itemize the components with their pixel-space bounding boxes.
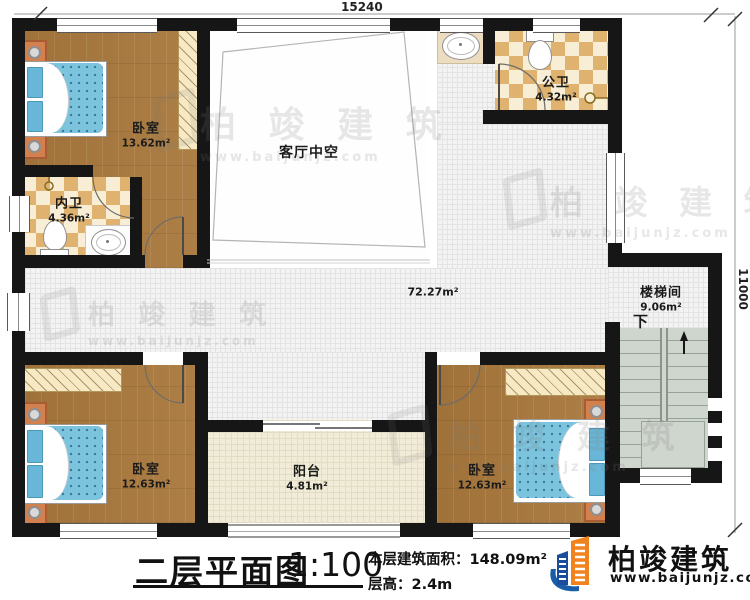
room-area: 12.63m² <box>458 479 507 491</box>
room-name: 客厅中空 <box>279 145 339 161</box>
room-area: 13.62m² <box>122 137 171 149</box>
door-arc <box>145 217 183 255</box>
dimension-tick <box>704 8 718 22</box>
door-arc <box>440 365 480 405</box>
floor-height-value: 2.4m <box>412 577 453 593</box>
title-underline <box>133 585 363 588</box>
room-label-bedroom-sw: 卧室 12.63m² <box>122 464 171 491</box>
room-area: 4.36m² <box>48 212 89 224</box>
watermark-logo-icon <box>502 167 547 231</box>
room-area: 4.32m² <box>535 91 576 103</box>
room-area: 12.63m² <box>122 478 171 490</box>
room-name: 卧室 <box>122 464 171 479</box>
logo-windows <box>575 545 585 580</box>
floor-area-text: 本层建筑面积：148.09m² <box>368 548 547 569</box>
door-arc <box>145 365 183 403</box>
room-name: 卧室 <box>458 465 507 480</box>
watermark-company: 柏 竣 建 筑 <box>448 410 684 458</box>
light-icon <box>45 182 53 190</box>
room-label-bedroom-nw: 卧室 13.62m² <box>122 123 171 150</box>
floor-area-label: 本层建筑面积： <box>368 552 470 568</box>
room-name: 内卫 <box>48 198 89 213</box>
watermark: 柏 竣 建 筑 www.baijunjz.com <box>88 293 273 348</box>
watermark-logo-icon <box>387 403 432 467</box>
company-website: www.baijunjz.com <box>610 570 750 586</box>
room-label-bath-inner: 内卫 4.36m² <box>48 198 89 225</box>
room-area: 4.81m² <box>286 480 327 492</box>
room-label-balcony: 阳台 4.81m² <box>286 466 327 493</box>
company-logo-icon <box>545 533 603 593</box>
room-label-bedroom-se: 卧室 12.63m² <box>458 465 507 492</box>
room-label-stair-hall: 楼梯间 9.06m² <box>640 287 682 314</box>
watermark-company: 柏 竣 建 筑 <box>200 96 452 148</box>
room-name: 楼梯间 <box>640 287 682 302</box>
dimension-top: 15240 <box>341 0 383 14</box>
room-label-corridor: 72.27m² <box>407 287 458 300</box>
watermark-logo-icon <box>40 286 81 343</box>
floor-height-label: 层高： <box>368 577 412 593</box>
logo-tower-orange <box>571 536 589 585</box>
room-label-living-void: 客厅中空 <box>279 145 339 161</box>
floor-plan-canvas: 柏 竣 建 筑 www.baijunjz.com 柏 竣 建 筑 www.bai… <box>0 0 750 600</box>
stair-direction-label: 下 <box>633 313 649 330</box>
room-area: 72.27m² <box>407 287 458 300</box>
watermark-website: www.baijunjz.com <box>550 226 750 241</box>
direction-text: 下 <box>633 313 649 330</box>
watermark-company: 柏 竣 建 筑 <box>88 293 273 332</box>
floor-height-text: 层高：2.4m <box>368 573 452 594</box>
drain-icon <box>585 93 595 103</box>
dimension-right: 11000 <box>736 268 750 310</box>
watermark-company: 柏 竣 建 筑 <box>550 176 750 224</box>
room-name: 卧室 <box>122 123 171 138</box>
watermark-website: www.baijunjz.com <box>88 334 273 348</box>
watermark: 柏 竣 建 筑 www.baijunjz.com <box>550 176 750 241</box>
room-label-bath-public: 公卫 4.32m² <box>535 77 576 104</box>
floor-area-value: 148.09m² <box>470 552 547 568</box>
room-name: 阳台 <box>286 466 327 481</box>
room-name: 公卫 <box>535 77 576 92</box>
door-arc <box>93 177 134 218</box>
